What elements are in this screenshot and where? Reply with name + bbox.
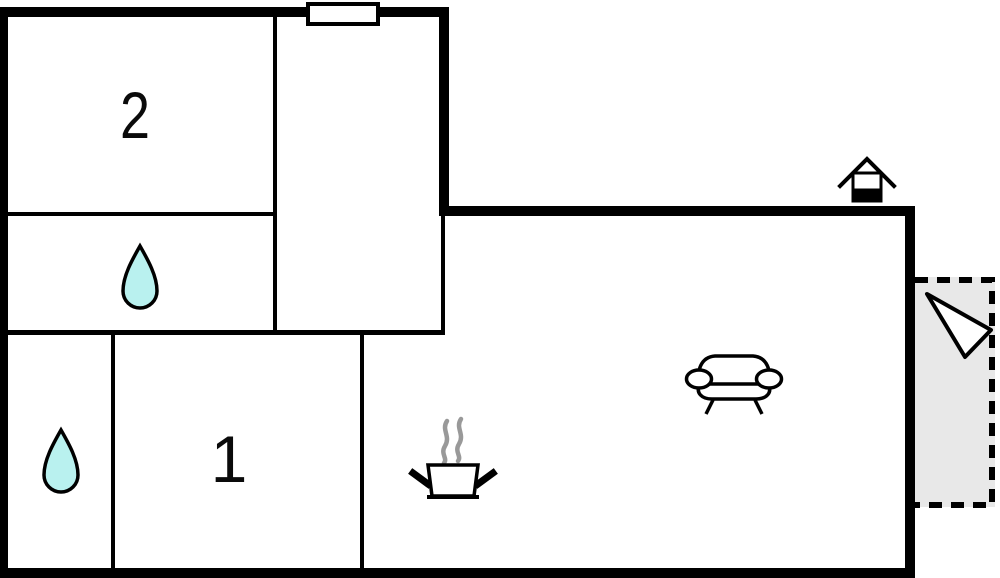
sofa-armrest-right — [757, 370, 782, 388]
wall-top-left-block — [0, 7, 449, 17]
wall-bath-room1-divider — [111, 335, 115, 568]
room-1-label: 1 — [211, 422, 248, 496]
wall-right — [905, 206, 915, 578]
wall-center-vertical-thick — [439, 7, 449, 216]
wall-hallway-living-divider — [441, 216, 445, 332]
wall-horizontal-middle — [0, 330, 445, 335]
chimney-box-dark-half — [855, 189, 880, 200]
window-icon — [308, 4, 378, 24]
terrace-area — [915, 277, 995, 507]
wall-room1-living-divider — [360, 335, 364, 568]
wall-left — [0, 7, 8, 578]
sofa-armrest-left — [687, 370, 712, 388]
floor-plan-drawing: 2 1 — [0, 0, 1000, 578]
wall-hallway-left — [273, 17, 277, 335]
room-2-label: 2 — [120, 78, 150, 152]
wall-top-right-block — [439, 206, 915, 216]
floor-plan: 2 1 — [0, 0, 1000, 578]
pot-body — [428, 465, 478, 496]
wall-room2-bath-divider — [8, 212, 273, 216]
wall-bottom — [0, 568, 915, 578]
